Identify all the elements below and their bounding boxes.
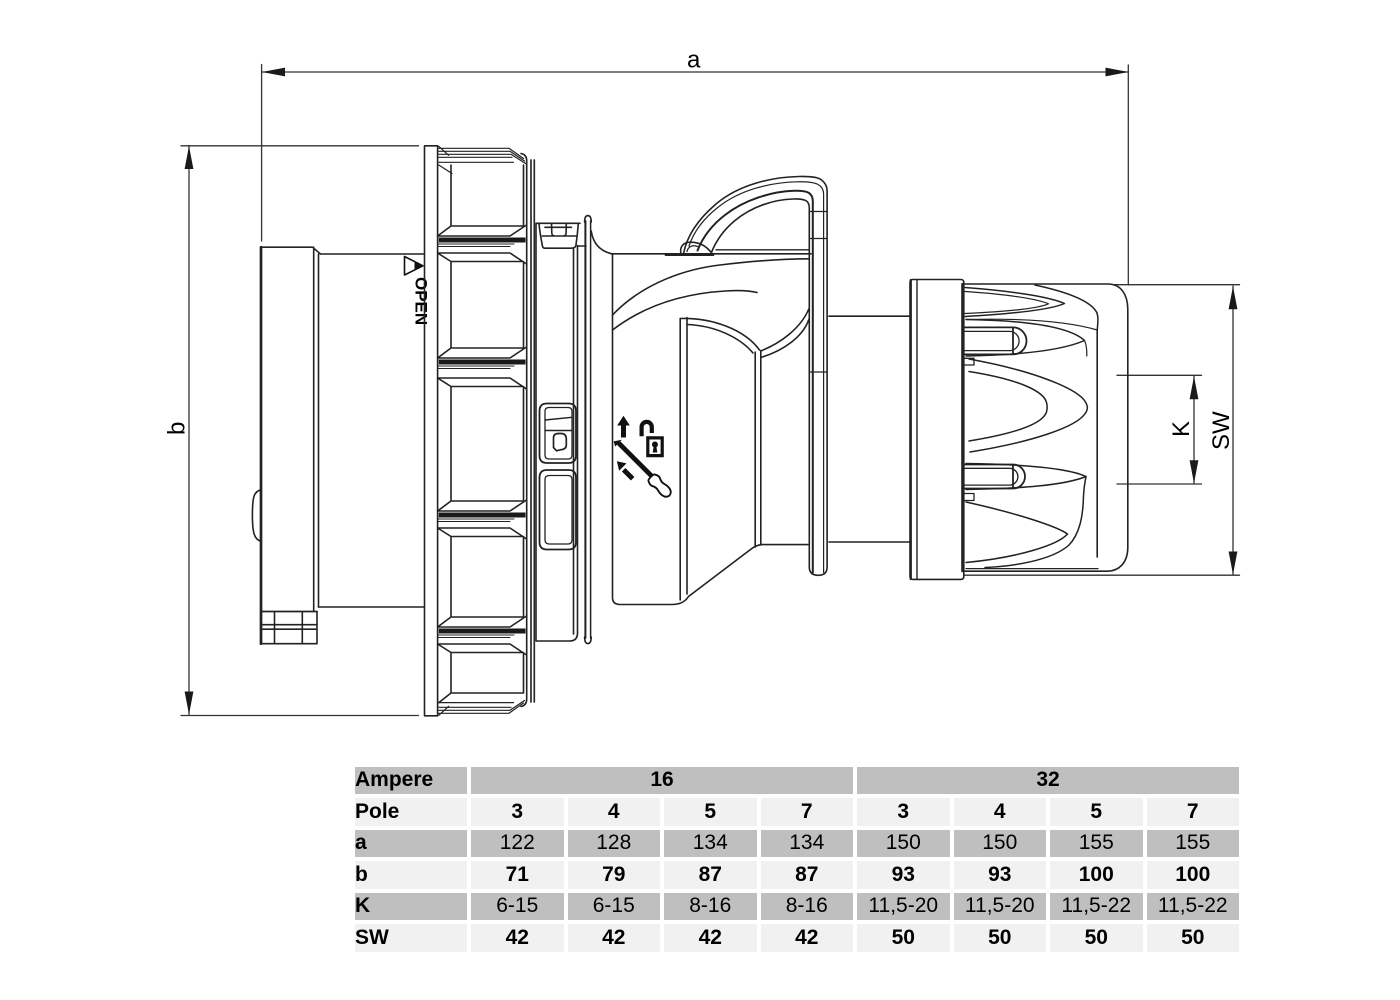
svg-text:b: b [164, 422, 191, 435]
svg-text:K: K [1168, 421, 1195, 437]
svg-text:OPEN: OPEN [412, 277, 431, 325]
svg-text:SW: SW [1208, 411, 1235, 450]
svg-text:a: a [687, 47, 701, 74]
